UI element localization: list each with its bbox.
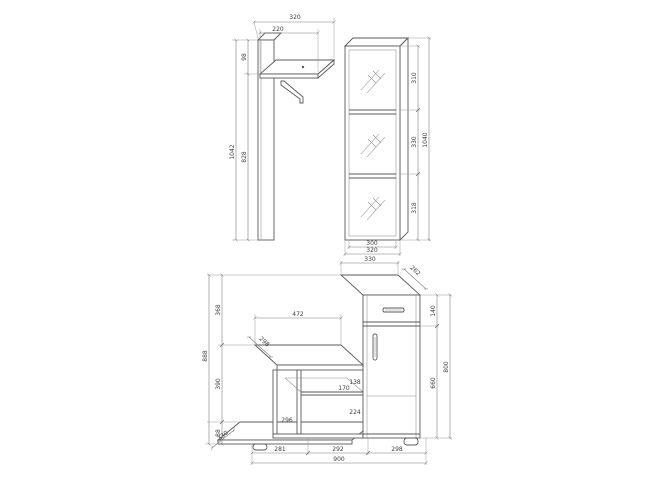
shelf-knob [302,66,304,68]
left-compartment-label: 296 [281,417,293,424]
base-left-height-label: 888 [202,350,209,362]
coat-hook [281,81,303,103]
drawer-height-label: 140 [430,305,437,317]
bottom-left-label: 281 [274,446,286,453]
wall-panel-dimensions: 320 220 1042 98 828 [229,14,334,240]
mirror-section-top-label: 310 [411,72,418,84]
cabinet-top-face [345,38,408,46]
right-cabinet-top-face [341,275,420,295]
total-width-label: 900 [333,456,345,463]
shelf-front-edge [260,74,318,78]
panel-top-face [258,33,281,40]
base-left-lower-label: 390 [215,378,222,390]
furniture-technical-drawing: 320 220 1042 98 828 [0,0,648,486]
bench-top-face [255,345,363,365]
mirror-inner-width-label: 300 [366,240,378,247]
mirror-total-height-label: 1040 [422,132,429,147]
base-left-upper-label: 368 [215,304,222,316]
shelf-gap-upper-label: 138 [349,379,361,386]
base-top-depth-label: 262 [408,264,421,277]
base-top-width-label: 330 [364,256,376,263]
foot [253,444,267,450]
cabinet-side-face [400,38,408,240]
bottom-right-label: 298 [391,446,403,453]
cabinet-front-face [345,46,400,240]
shelf-gap-lower-label: 224 [349,409,361,416]
panel-top-offset-label: 98 [241,53,248,61]
lower-height-label: 660 [430,377,437,389]
bench-width-label: 472 [292,311,304,318]
panel-total-height-label: 1042 [229,144,236,159]
bench-front-edge [277,365,363,370]
foot [404,438,418,445]
panel-shelf-width-label: 220 [272,26,284,33]
right-height-label: 800 [443,361,450,373]
shelf-depth-label: 170 [338,385,350,392]
panel-total-width-label: 320 [289,14,301,21]
panel-below-shelf-label: 828 [241,151,248,163]
bench-left-panel [273,370,277,434]
mirror-section-bottom-label: 318 [411,202,418,214]
bench-divider-panel [297,370,301,434]
bench-bottom-board [273,434,363,438]
plinth-front-edge [218,440,352,444]
base-unit-drawing [218,275,420,450]
bottom-middle-label: 292 [332,446,344,453]
right-cabinet-front-face [363,295,420,438]
mirror-outer-width-label: 320 [366,247,378,254]
mirror-section-middle-label: 330 [411,136,418,148]
mirror-cabinet-drawing [345,38,408,240]
wall-panel-drawing [258,33,334,240]
technical-drawing-page: 320 220 1042 98 828 [0,0,648,486]
